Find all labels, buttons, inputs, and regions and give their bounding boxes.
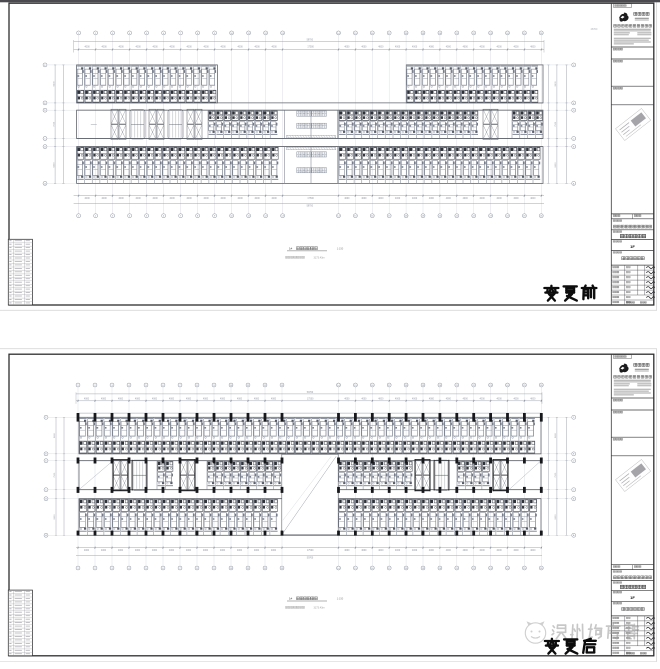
svg-text:1#: 1# [289, 247, 293, 251]
svg-text:4000: 4000 [170, 46, 176, 48]
svg-text:4000: 4000 [119, 198, 125, 200]
svg-text:4000: 4000 [136, 46, 142, 48]
svg-text:8400: 8400 [555, 514, 557, 520]
svg-text:7500: 7500 [53, 121, 55, 127]
svg-text:4000: 4000 [530, 550, 536, 552]
svg-text:4000: 4000 [203, 398, 209, 400]
svg-text:4000: 4000 [361, 550, 367, 552]
svg-text:4000: 4000 [513, 398, 519, 400]
svg-text:4000: 4000 [412, 550, 418, 552]
svg-text:4000: 4000 [463, 550, 469, 552]
svg-text:59700: 59700 [307, 206, 314, 208]
svg-text:4000: 4000 [238, 46, 244, 48]
svg-text:4000: 4000 [463, 198, 469, 200]
svg-text:4000: 4000 [446, 46, 452, 48]
svg-text:4000: 4000 [480, 398, 486, 400]
svg-text:4000: 4000 [446, 198, 452, 200]
svg-text:1#: 1# [289, 597, 293, 601]
svg-text:4000: 4000 [118, 550, 124, 552]
svg-text:4000: 4000 [153, 46, 159, 48]
svg-text:4000: 4000 [204, 198, 210, 200]
svg-text:4000: 4000 [530, 398, 536, 400]
svg-text:17500: 17500 [307, 550, 314, 552]
svg-text:8400: 8400 [54, 514, 56, 520]
svg-text:4000: 4000 [102, 198, 108, 200]
svg-text:4000: 4000 [237, 550, 243, 552]
svg-text:4000: 4000 [221, 46, 227, 48]
svg-text:4000: 4000 [203, 550, 209, 552]
svg-text:4000: 4000 [84, 550, 90, 552]
svg-text:4000: 4000 [152, 398, 158, 400]
svg-text:4000: 4000 [84, 398, 90, 400]
svg-text:4000: 4000 [378, 550, 384, 552]
svg-text:4000: 4000 [187, 46, 193, 48]
svg-text:4000: 4000 [513, 550, 519, 552]
svg-text:4000: 4000 [463, 46, 469, 48]
svg-text:4000: 4000 [344, 46, 350, 48]
svg-text:4000: 4000 [395, 198, 401, 200]
svg-text:4000: 4000 [220, 398, 226, 400]
svg-text:4000: 4000 [187, 198, 193, 200]
svg-text:4000: 4000 [170, 198, 176, 200]
svg-text:4000: 4000 [119, 46, 125, 48]
svg-text:4000: 4000 [254, 550, 260, 552]
svg-text:4000: 4000 [220, 550, 226, 552]
svg-text:4000: 4000 [378, 46, 384, 48]
svg-text:4000: 4000 [463, 398, 469, 400]
svg-text:4000: 4000 [272, 198, 278, 200]
svg-text:4000: 4000 [344, 198, 350, 200]
svg-text:1F: 1F [630, 244, 635, 249]
svg-text:59700: 59700 [307, 392, 314, 394]
svg-text:4000: 4000 [255, 46, 261, 48]
svg-text:4000: 4000 [135, 398, 141, 400]
svg-text:4000: 4000 [513, 198, 519, 200]
svg-text:4000: 4000 [136, 198, 142, 200]
svg-text:4000: 4000 [412, 198, 418, 200]
svg-text:4000: 4000 [238, 198, 244, 200]
svg-text:4000: 4000 [530, 46, 536, 48]
svg-text:4000: 4000 [480, 198, 486, 200]
svg-text:17500: 17500 [307, 198, 314, 200]
svg-text:4000: 4000 [153, 198, 159, 200]
svg-text:4000: 4000 [497, 550, 503, 552]
svg-text:4000: 4000 [429, 198, 435, 200]
svg-text:8400: 8400 [54, 432, 56, 438]
svg-text:4000: 4000 [378, 198, 384, 200]
svg-text:4000: 4000 [497, 198, 503, 200]
svg-text:59700: 59700 [307, 558, 314, 560]
svg-text:4000: 4000 [361, 198, 367, 200]
svg-text:4000: 4000 [118, 398, 124, 400]
svg-text:7500: 7500 [54, 472, 56, 478]
svg-text:4000: 4000 [480, 46, 486, 48]
svg-text:3173.43m: 3173.43m [313, 256, 324, 259]
svg-text:4000: 4000 [395, 550, 401, 552]
svg-text:4000: 4000 [101, 398, 107, 400]
svg-text:3173.43m: 3173.43m [313, 607, 324, 610]
svg-text:7500: 7500 [555, 472, 557, 478]
svg-text:4000: 4000 [395, 46, 401, 48]
svg-text:8400: 8400 [53, 81, 55, 87]
svg-text:4000: 4000 [497, 46, 503, 48]
svg-text:4000: 4000 [254, 398, 260, 400]
svg-text:4000: 4000 [412, 398, 418, 400]
svg-text:8400: 8400 [555, 162, 557, 168]
svg-text:4000: 4000 [135, 550, 141, 552]
svg-text:4000: 4000 [271, 398, 277, 400]
svg-text:4000: 4000 [429, 550, 435, 552]
svg-text:4000: 4000 [272, 46, 278, 48]
svg-text:17500: 17500 [307, 398, 314, 400]
svg-text:4000: 4000 [204, 46, 210, 48]
svg-text:4000: 4000 [85, 46, 91, 48]
svg-text:4000: 4000 [255, 198, 261, 200]
svg-text:4000: 4000 [186, 398, 192, 400]
svg-text:4000: 4000 [378, 398, 384, 400]
svg-text:28700: 28700 [591, 28, 598, 31]
svg-text:1:150: 1:150 [337, 597, 344, 601]
svg-text:4000: 4000 [169, 550, 175, 552]
svg-text:7500: 7500 [555, 121, 557, 127]
svg-text:8400: 8400 [555, 432, 557, 438]
svg-text:17500: 17500 [307, 46, 314, 48]
svg-text:4000: 4000 [344, 398, 350, 400]
svg-text:4000: 4000 [446, 398, 452, 400]
svg-text:4000: 4000 [429, 46, 435, 48]
svg-text:4000: 4000 [85, 198, 91, 200]
svg-text:4000: 4000 [344, 550, 350, 552]
svg-text:1:150: 1:150 [337, 247, 344, 251]
svg-text:4000: 4000 [395, 398, 401, 400]
svg-text:4000: 4000 [186, 550, 192, 552]
svg-text:4000: 4000 [102, 46, 108, 48]
svg-text:4000: 4000 [101, 550, 107, 552]
svg-text:4000: 4000 [497, 398, 503, 400]
svg-text:4000: 4000 [429, 398, 435, 400]
svg-text:4000: 4000 [361, 398, 367, 400]
svg-text:1F: 1F [630, 595, 635, 600]
svg-text:59700: 59700 [307, 40, 314, 42]
svg-text:4000: 4000 [361, 46, 367, 48]
svg-text:4000: 4000 [271, 550, 277, 552]
svg-text:4000: 4000 [480, 550, 486, 552]
svg-text:4000: 4000 [513, 46, 519, 48]
svg-text:4000: 4000 [237, 398, 243, 400]
svg-text:4000: 4000 [152, 550, 158, 552]
svg-text:4000: 4000 [221, 198, 227, 200]
svg-text:8400: 8400 [53, 162, 55, 168]
svg-text:4000: 4000 [169, 398, 175, 400]
svg-text:4000: 4000 [446, 550, 452, 552]
svg-text:4000: 4000 [530, 198, 536, 200]
svg-text:8400: 8400 [555, 81, 557, 87]
svg-text:4000: 4000 [412, 46, 418, 48]
